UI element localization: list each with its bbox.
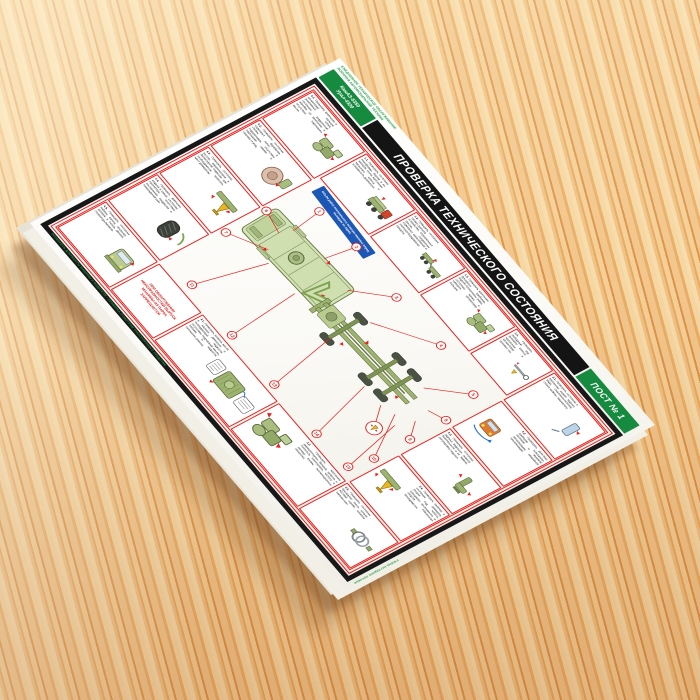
- callout-line: [192, 250, 269, 298]
- callout-number-10: 10: [367, 453, 380, 464]
- callout-line: [227, 294, 299, 336]
- callout-number-5: 5: [467, 389, 480, 400]
- callout-line: [226, 222, 268, 259]
- callout-number-11: 11: [185, 280, 198, 291]
- callout-number-2: 2: [350, 242, 363, 253]
- callout-line: [424, 372, 474, 411]
- callout-line: [370, 304, 441, 364]
- callout-line: [348, 275, 397, 313]
- callout-number-4: 4: [434, 340, 447, 351]
- callout-number-14: 14: [310, 429, 323, 440]
- callout-number-9: 9: [403, 434, 416, 445]
- callout-number-8: 8: [439, 415, 452, 426]
- callout-number-12: 12: [225, 330, 238, 341]
- callout-number-3: 3: [390, 292, 403, 303]
- wooden-table-background: { "poster": { "note_line1": "ЕЖЕДНЕВНОЕ …: [0, 0, 700, 700]
- callout-line: [265, 338, 340, 384]
- magnifier-detail-circle: [362, 419, 385, 438]
- poster-board: ЕЖЕДНЕВНОЕ ТЕХНИЧЕСКОЕ ОБСЛУЖИВАНИЕ ВОЕН…: [30, 58, 655, 590]
